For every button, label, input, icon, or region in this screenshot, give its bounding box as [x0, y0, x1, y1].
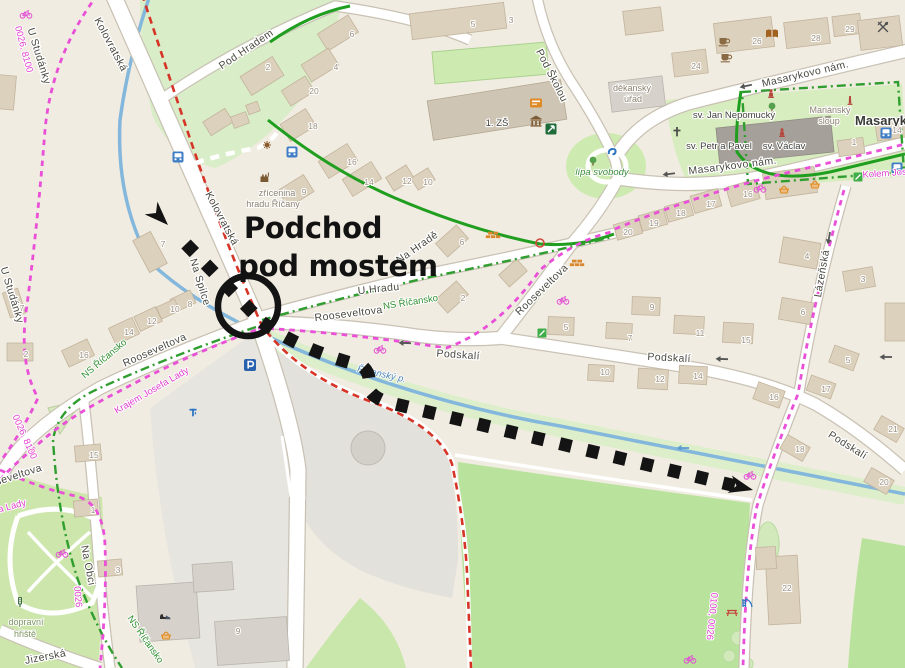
house-number: 3: [116, 565, 121, 575]
poi-label: sv. Petr a Pavel: [686, 141, 752, 152]
house-number: 2: [461, 293, 466, 303]
poi-label: 1. ZŠ: [486, 118, 509, 129]
house-number: 22: [782, 583, 792, 593]
library-icon[interactable]: [766, 30, 778, 38]
house-number: 28: [811, 33, 821, 43]
house-number: 18: [308, 121, 318, 131]
house-number: 11: [696, 328, 705, 338]
house-number: 15: [741, 335, 751, 345]
poi-label: hřiště: [14, 629, 36, 639]
house-number: 6: [350, 29, 355, 39]
parking-icon[interactable]: [244, 359, 256, 371]
house-number: 3: [861, 274, 866, 284]
map-screenshot: KolovratskáKolovratskáPod HrademPod Škol…: [0, 0, 905, 668]
bus-stop-icon[interactable]: [173, 152, 184, 163]
building: [632, 297, 661, 316]
building: [192, 562, 234, 593]
trail-label: 0026: [71, 586, 84, 608]
street-label: Podskalí: [647, 351, 691, 365]
house-number: 6: [460, 237, 465, 247]
house-number: 14: [693, 371, 703, 381]
poi-label: úřad: [624, 94, 642, 104]
sun-icon[interactable]: [263, 141, 271, 149]
house-number: 4: [334, 62, 339, 72]
house-number: 14: [364, 177, 374, 187]
house-number: 17: [821, 384, 831, 394]
house-number: 16: [743, 189, 753, 199]
bus-stop-icon[interactable]: [881, 128, 892, 139]
house-number: 1: [852, 137, 857, 147]
green-marker-icon[interactable]: [854, 173, 863, 182]
bus-stop-icon[interactable]: [287, 147, 298, 158]
house-number: 9: [302, 187, 307, 197]
house-number: 5: [564, 322, 569, 332]
house-number: 7: [20, 303, 25, 313]
annotation-line1: Podchod: [244, 211, 382, 245]
building: [857, 16, 902, 51]
atm-icon[interactable]: [530, 99, 542, 108]
poi-label: sv. Václav: [763, 141, 806, 152]
poi-label: dopravní: [8, 617, 44, 627]
poi-label: zřícenina: [259, 188, 296, 198]
house-number: 6: [801, 307, 806, 317]
guidepost-icon[interactable]: [546, 124, 557, 135]
house-number: 15: [89, 450, 99, 460]
house-number: 2: [266, 62, 271, 72]
poi-label: děkanský: [613, 83, 652, 93]
house-number: 12: [147, 316, 157, 326]
house-number: 14: [892, 125, 902, 135]
house-number: 18: [795, 444, 805, 454]
house-number: 9: [650, 302, 655, 312]
house-number: 5: [471, 19, 476, 29]
house-number: 20: [309, 86, 319, 96]
house-number: 19: [649, 218, 659, 228]
map-canvas[interactable]: KolovratskáKolovratskáPod HrademPod Škol…: [0, 0, 905, 668]
house-number: 12: [402, 176, 412, 186]
house-number: 21: [888, 424, 898, 434]
house-number: 1: [91, 505, 96, 515]
house-number: 12: [655, 374, 665, 384]
house-number: 2: [24, 349, 29, 359]
house-number: 4: [805, 251, 810, 261]
building: [623, 7, 664, 35]
house-number: 16: [79, 350, 89, 360]
house-number: 26: [752, 36, 762, 46]
building: [7, 343, 33, 361]
building: [672, 49, 709, 77]
building: [784, 17, 831, 48]
house-number: 20: [623, 227, 633, 237]
tree-blob: [723, 650, 735, 662]
house-number: 20: [879, 477, 889, 487]
building: [885, 303, 905, 341]
house-number: 3: [509, 15, 514, 25]
house-number: 8: [188, 299, 193, 309]
house-number: 9: [236, 626, 241, 636]
poi-label: sloup: [818, 116, 840, 126]
house-number: 14: [124, 327, 134, 337]
house-number: 10: [170, 304, 180, 314]
house-number: 18: [676, 208, 686, 218]
poi-label: sv. Jan Nepomucký: [693, 110, 775, 121]
poi-label: lípa svobody: [575, 167, 630, 178]
poi-label: hradu Říčany: [246, 199, 300, 209]
building: [215, 617, 290, 666]
house-number: 24: [691, 61, 701, 71]
house-number: 5: [846, 355, 851, 365]
poi-label: Mariánský: [809, 105, 851, 115]
house-number: 17: [706, 199, 716, 209]
house-number: 7: [628, 333, 633, 343]
house-number: 7: [161, 239, 166, 249]
green-marker-icon[interactable]: [538, 329, 547, 338]
building: [548, 317, 575, 336]
silo-circle: [351, 431, 385, 465]
building: [0, 74, 16, 110]
house-number: 10: [600, 367, 610, 377]
annotation-line2: pod mostem: [238, 249, 438, 283]
house-number: 10: [423, 177, 433, 187]
house-number: 16: [347, 157, 357, 167]
house-number: 16: [769, 392, 779, 402]
house-number: 29: [845, 24, 855, 34]
building: [755, 546, 776, 569]
